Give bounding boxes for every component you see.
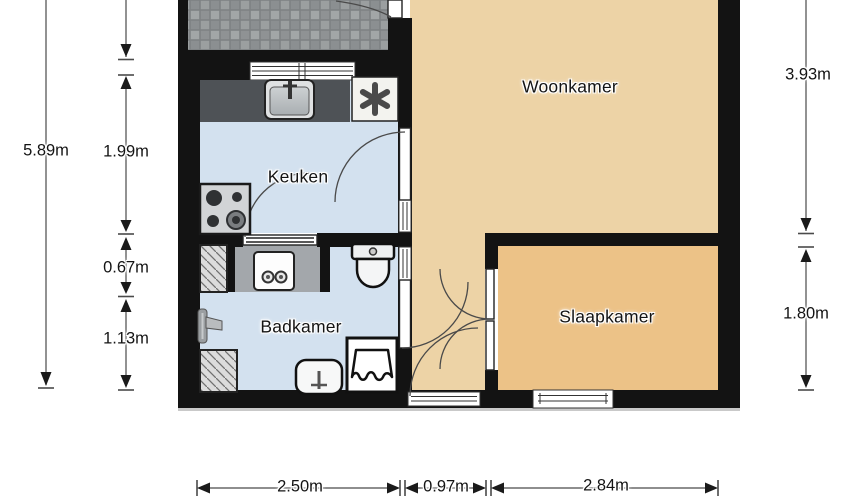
room-label-keuken: Keuken (268, 167, 329, 188)
dim-label-bedroom-depth: 1.80m (783, 305, 829, 324)
kitchen-door-leaf (400, 128, 411, 200)
wall-shadow (178, 408, 740, 411)
dim-label-bathroom-depth: 1.13m (103, 330, 149, 349)
bedroom-door-leaf-bottom (486, 321, 494, 370)
dim-label-bedroom-width: 2.84m (583, 477, 629, 496)
shaft-hatch (200, 350, 237, 392)
washbasin-icon (296, 360, 342, 394)
floorplan-drawing (0, 0, 850, 500)
kitchen-balcony-window (250, 62, 355, 80)
dim-label-left-total: 5.89m (23, 142, 69, 161)
hall-floor (410, 233, 485, 392)
floorplan: Woonkamer Keuken Badkamer Slaapkamer 5.8… (0, 0, 850, 500)
kitchen-bathroom-door-sill (243, 235, 317, 245)
dim-label-living-depth: 3.93m (785, 66, 831, 85)
balcony-tiled-floor (187, 0, 388, 50)
dim-label-hall-width: 0.97m (423, 478, 469, 497)
room-label-badkamer: Badkamer (260, 317, 341, 338)
room-label-slaapkamer: Slaapkamer (559, 307, 654, 328)
room-label-woonkamer: Woonkamer (522, 77, 618, 98)
kitchen-sink-icon (265, 80, 314, 119)
shaft-hatch (200, 245, 227, 292)
kitchen-hall-window (399, 200, 411, 232)
washing-machine-icon (254, 252, 294, 290)
balcony-door-leaf (388, 0, 402, 18)
dim-label-kitchen-width: 2.50m (277, 478, 323, 497)
dim-label-utility-depth: 0.67m (103, 259, 149, 278)
stove-icon (200, 184, 250, 234)
shower-icon (347, 338, 397, 392)
dim-label-kitchen-depth: 1.99m (103, 143, 149, 162)
bathroom-door-leaf (400, 280, 411, 348)
living-room-floor (410, 0, 718, 240)
hall-entrance-sill (408, 392, 480, 406)
bedroom-window (533, 390, 613, 408)
bathroom-hall-window (399, 247, 411, 280)
bedroom-door-leaf-top (486, 269, 494, 319)
dim-left-total (38, 0, 54, 388)
dim-right (798, 0, 814, 390)
boiler-icon (352, 77, 398, 121)
